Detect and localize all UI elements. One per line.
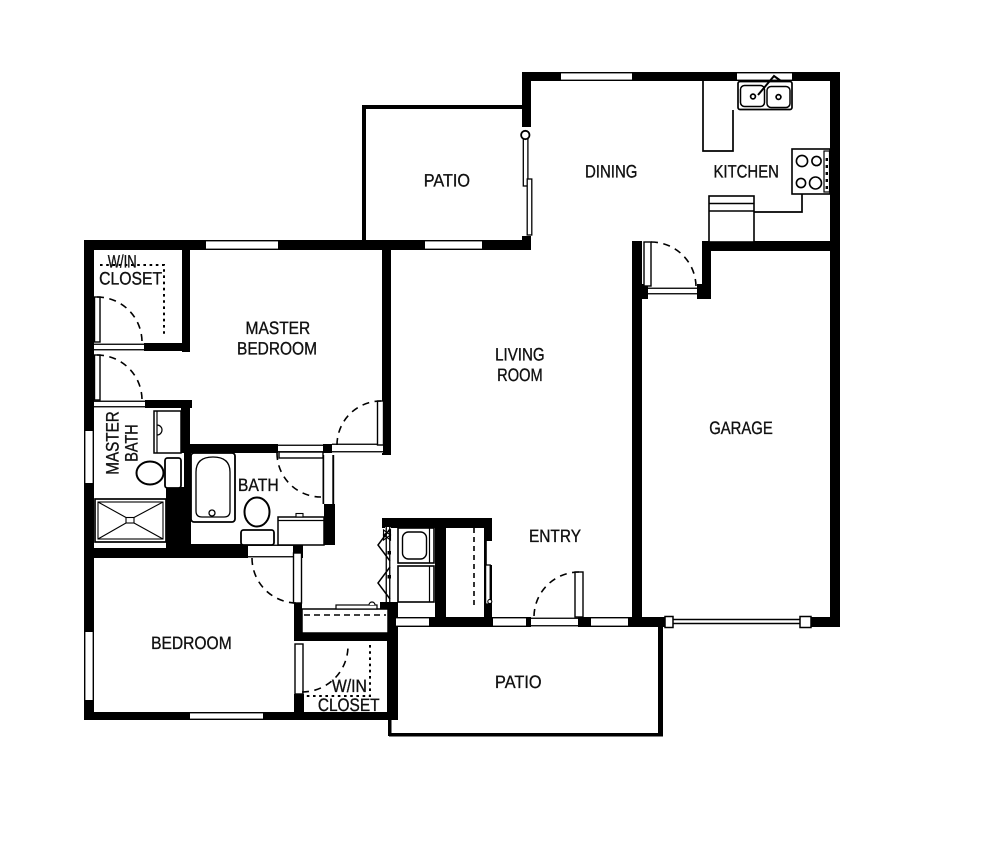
svg-text:ENTRY: ENTRY: [529, 526, 581, 546]
svg-text:BATH: BATH: [238, 475, 279, 495]
svg-text:CLOSET: CLOSET: [99, 269, 162, 289]
svg-text:LIVING: LIVING: [495, 344, 545, 364]
svg-text:BATH: BATH: [122, 424, 142, 462]
svg-text:ROOM: ROOM: [497, 365, 543, 385]
svg-text:BEDROOM: BEDROOM: [151, 633, 232, 653]
svg-text:GARAGE: GARAGE: [709, 418, 773, 438]
svg-text:PATIO: PATIO: [424, 170, 470, 190]
svg-text:BEDROOM: BEDROOM: [237, 338, 317, 358]
svg-text:CLOSET: CLOSET: [318, 695, 380, 715]
svg-text:MASTER: MASTER: [102, 411, 122, 475]
svg-text:MASTER: MASTER: [246, 318, 311, 338]
svg-text:KITCHEN: KITCHEN: [714, 161, 779, 181]
svg-text:W/IN: W/IN: [332, 676, 367, 696]
svg-text:PATIO: PATIO: [495, 672, 542, 692]
svg-text:DINING: DINING: [585, 162, 638, 182]
